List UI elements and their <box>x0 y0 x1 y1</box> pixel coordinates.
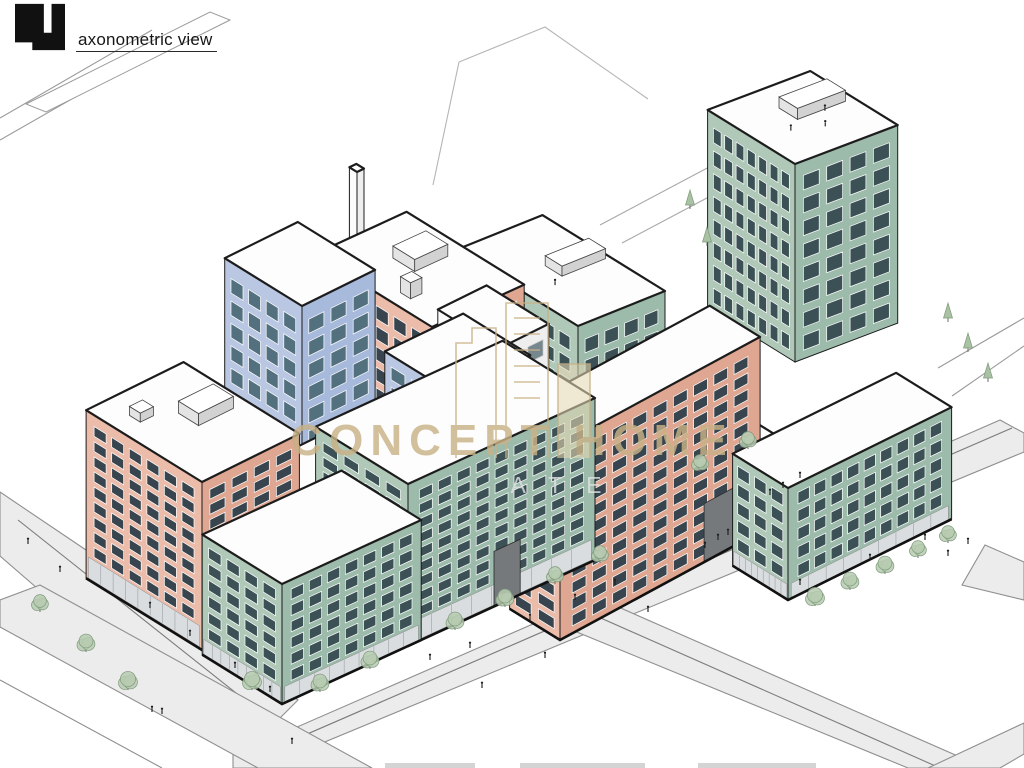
axonometric-page: CONCEPT HOME ATE axonometric view <box>0 0 1024 768</box>
tree-icon <box>910 541 927 558</box>
road-line-right-upper <box>938 318 1024 368</box>
tree-icon <box>940 526 957 543</box>
footer-cropped-text-fragment <box>520 763 645 768</box>
watermark-fragment: ATE <box>510 472 625 498</box>
building-tower-north-east <box>708 71 898 362</box>
building-block <box>86 71 952 704</box>
road-band-east <box>962 545 1024 600</box>
watermark-title: CONCEPT HOME <box>290 416 733 465</box>
tree-icon <box>841 572 859 590</box>
axonometric-illustration: CONCEPT HOME ATE <box>0 0 1024 768</box>
road-band-bottom-right <box>928 723 1024 768</box>
pine-tree-icon <box>984 363 993 382</box>
tree-icon <box>876 556 894 574</box>
drawing-header: axonometric view <box>8 2 217 52</box>
footer-cropped-text-fragment <box>698 763 816 768</box>
blocky-numeral-4-logo-icon <box>8 2 72 52</box>
curb-line-south <box>560 600 940 768</box>
view-title: axonometric view <box>76 31 217 52</box>
building-podium-east-green <box>733 373 952 600</box>
pine-tree-icon <box>944 303 953 322</box>
background-building-outline <box>433 27 648 185</box>
pine-tree-icon <box>686 190 695 209</box>
footer-cropped-text-fragment <box>385 763 475 768</box>
